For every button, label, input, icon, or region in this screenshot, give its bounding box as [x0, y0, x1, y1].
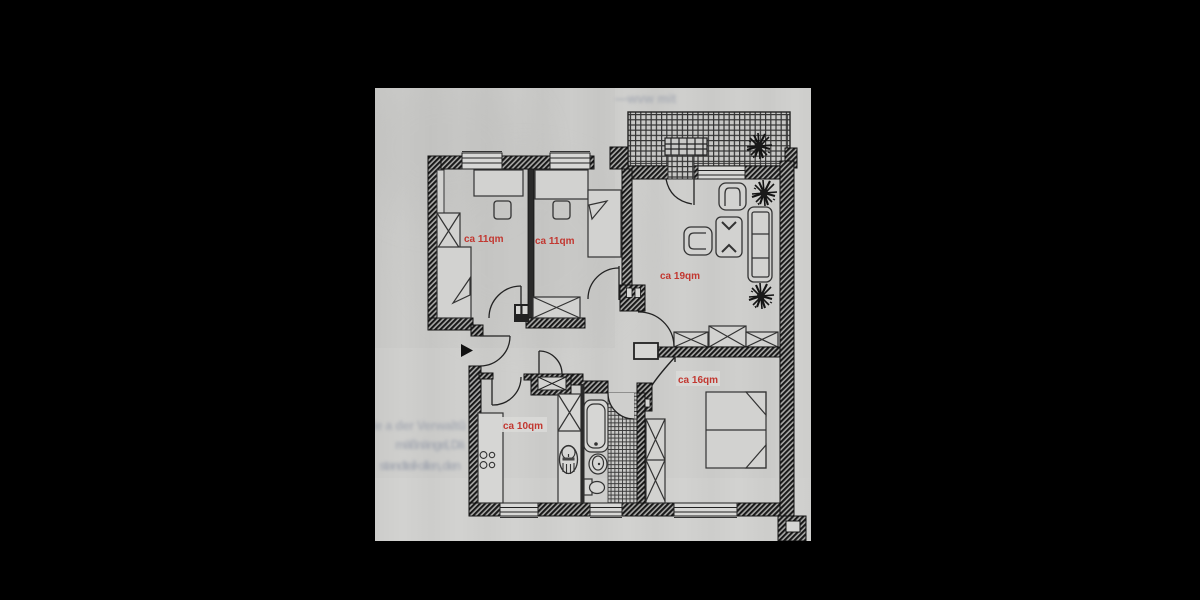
svg-text:ca 16qm: ca 16qm	[678, 375, 718, 386]
svg-text:standteil·ollen, den: standteil·ollen, den	[379, 459, 461, 473]
svg-text:ca 11qm: ca 11qm	[464, 234, 504, 245]
svg-text:ca 11qm: ca 11qm	[535, 236, 575, 247]
svg-text:ca 10qm: ca 10qm	[503, 421, 543, 432]
svg-text:ca 19qm: ca 19qm	[660, 271, 700, 282]
svg-text:nde a der Verwaltũ: nde a der Verwaltũ	[375, 419, 466, 433]
svg-text:—wvw mit: —wvw mit	[615, 92, 677, 106]
svg-text:mäßnängel, Dä: mäßnängel, Dä	[395, 438, 465, 452]
